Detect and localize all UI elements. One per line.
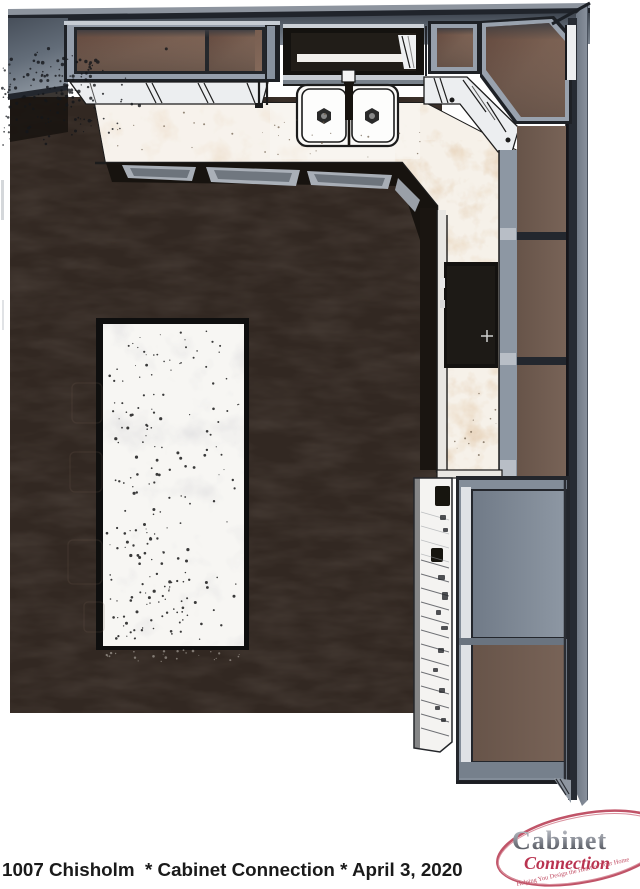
- svg-text:1007 Chisholm * Cabinet Conne: 1007 Chisholm * Cabinet Connection * Apr…: [2, 859, 463, 880]
- svg-text:Cabinet: Cabinet: [512, 826, 607, 855]
